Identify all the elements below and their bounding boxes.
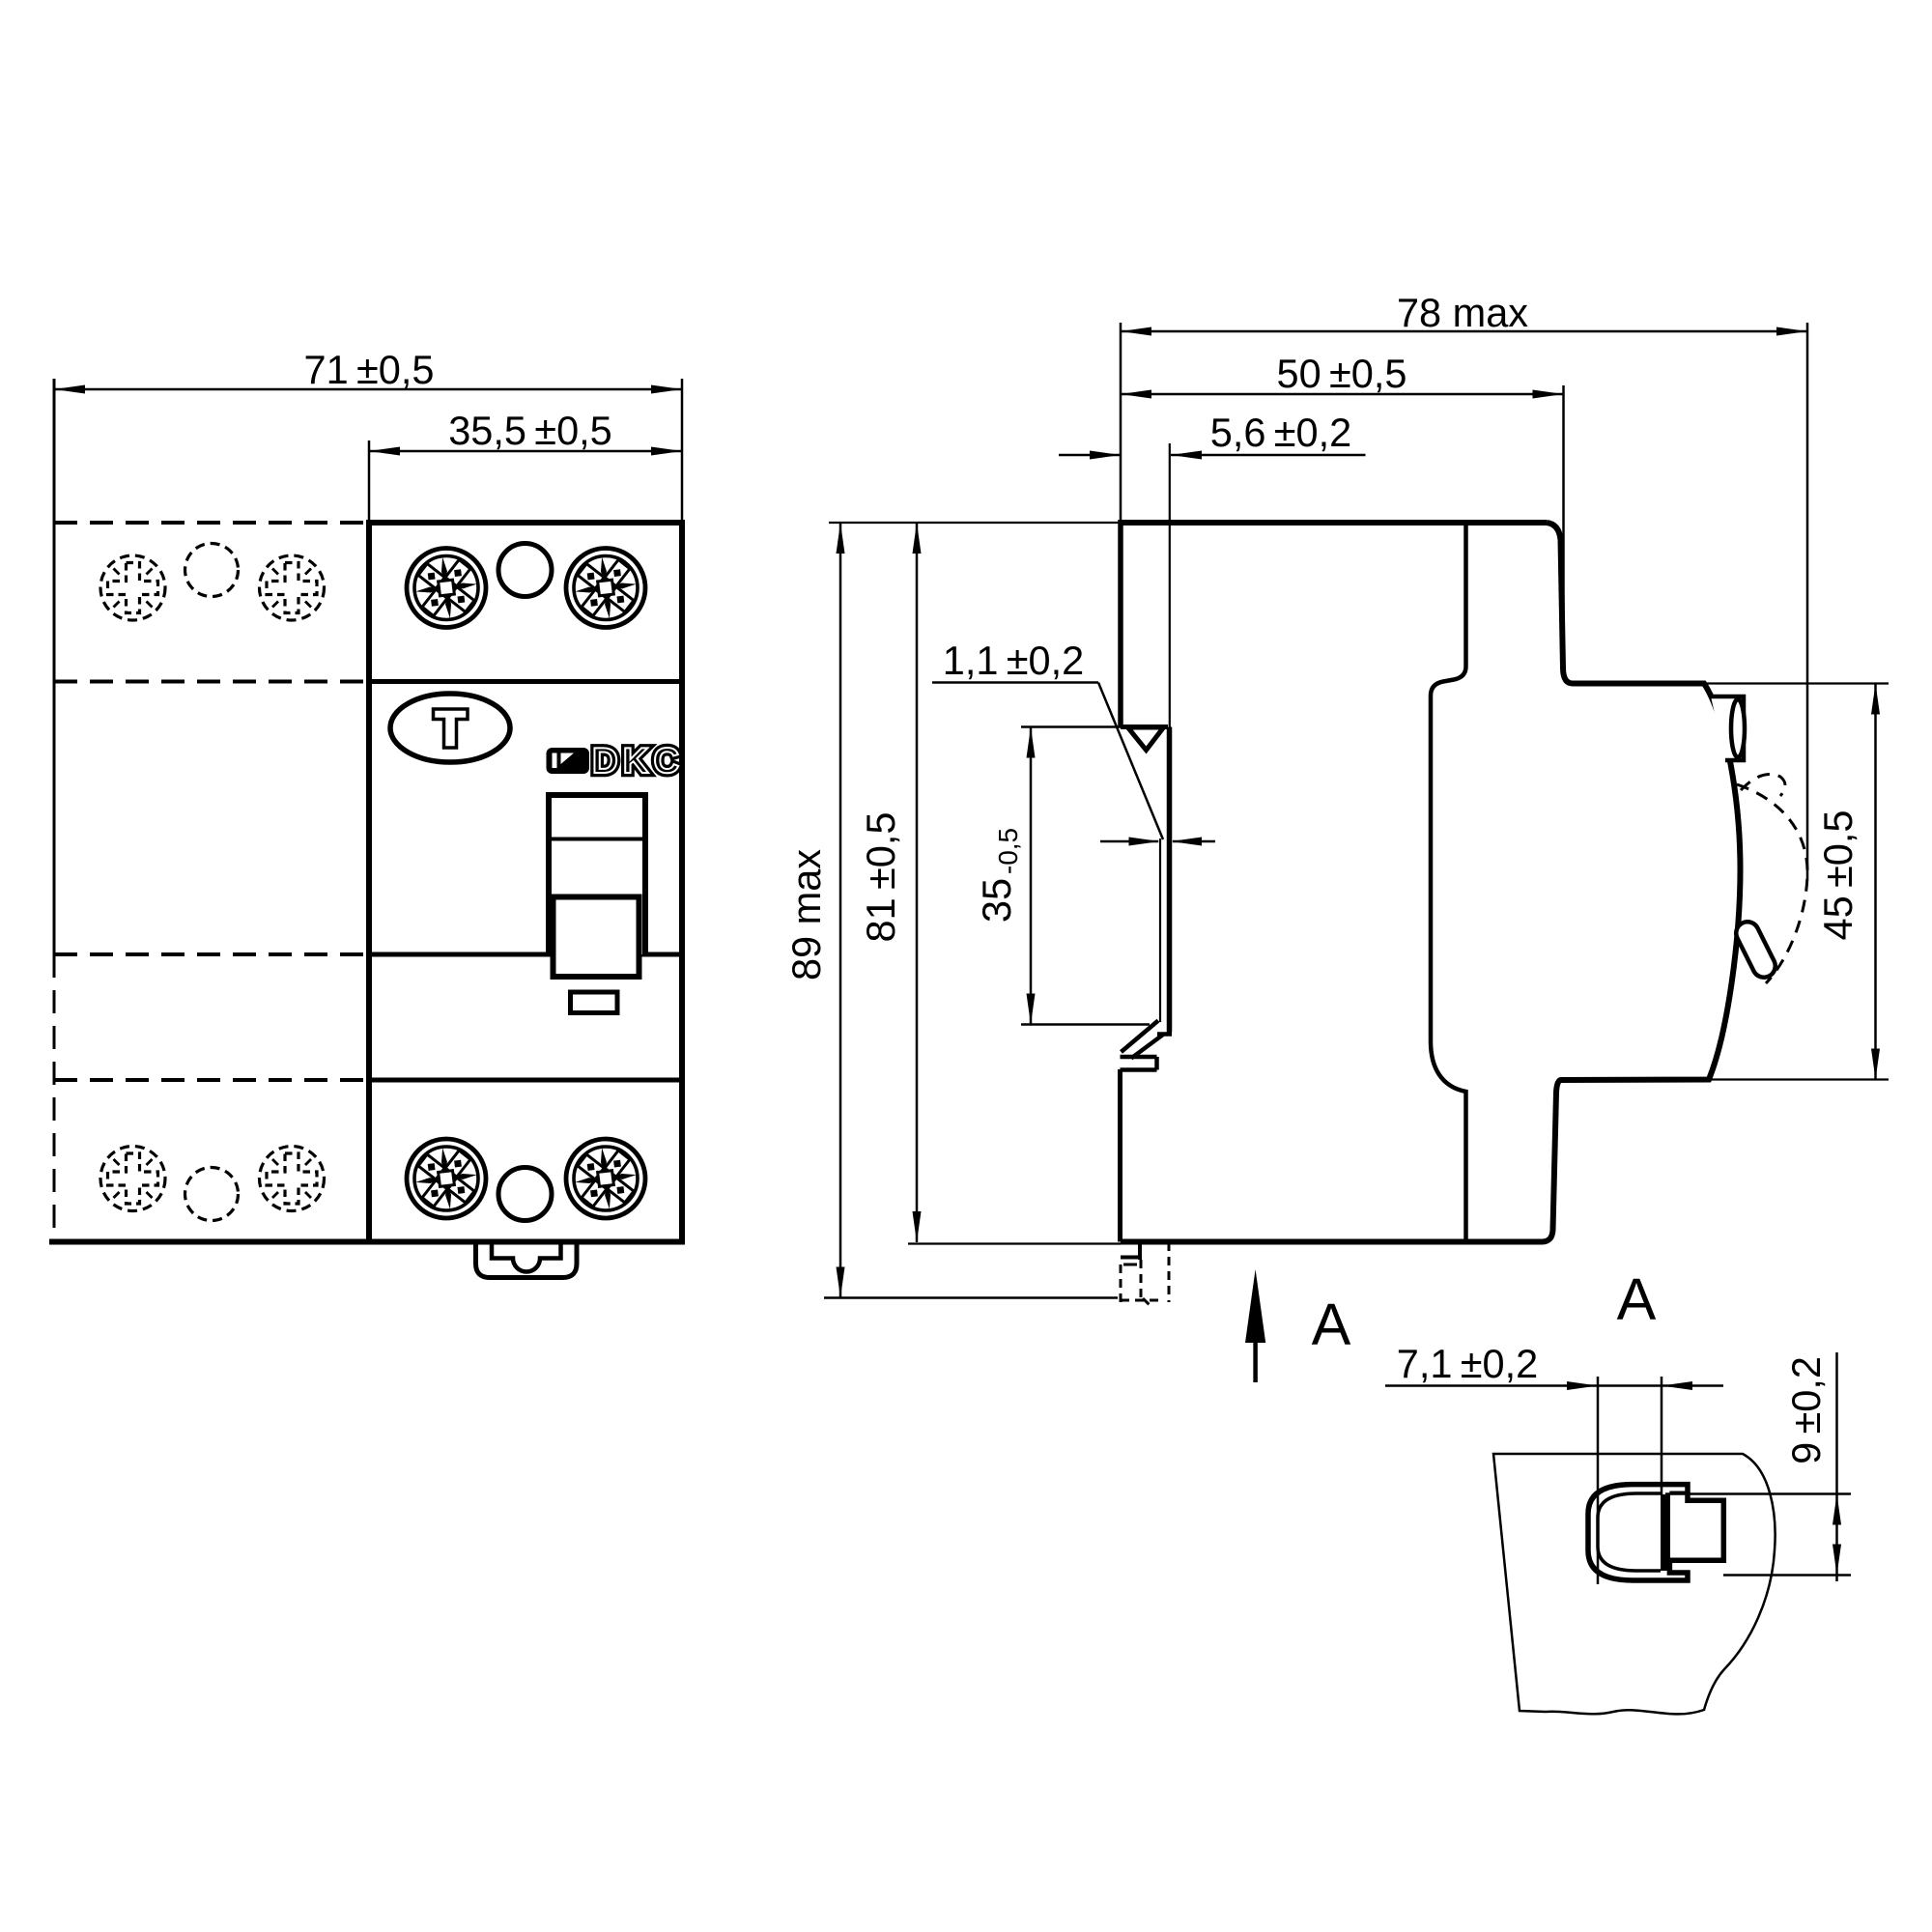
- svg-text:89 max: 89 max: [783, 849, 829, 980]
- svg-text:35: 35: [974, 878, 1019, 923]
- svg-text:7,1 ±0,2: 7,1 ±0,2: [1397, 1341, 1538, 1386]
- svg-text:1,1 ±0,2: 1,1 ±0,2: [943, 638, 1084, 683]
- svg-text:A: A: [1617, 1266, 1657, 1332]
- svg-text:35,5 ±0,5: 35,5 ±0,5: [448, 408, 612, 453]
- svg-text:45 ±0,5: 45 ±0,5: [1815, 810, 1861, 941]
- svg-text:A: A: [1312, 1292, 1351, 1357]
- svg-text:50 ±0,5: 50 ±0,5: [1277, 351, 1407, 396]
- svg-text:-0,5: -0,5: [993, 828, 1023, 874]
- svg-text:81 ±0,5: 81 ±0,5: [858, 812, 903, 943]
- svg-text:5,6 ±0,2: 5,6 ±0,2: [1210, 410, 1351, 455]
- svg-text:DKC: DKC: [592, 741, 684, 781]
- svg-text:78 max: 78 max: [1397, 290, 1528, 335]
- svg-text:9 ±0,2: 9 ±0,2: [1783, 1356, 1829, 1464]
- svg-text:71 ±0,5: 71 ±0,5: [304, 347, 435, 392]
